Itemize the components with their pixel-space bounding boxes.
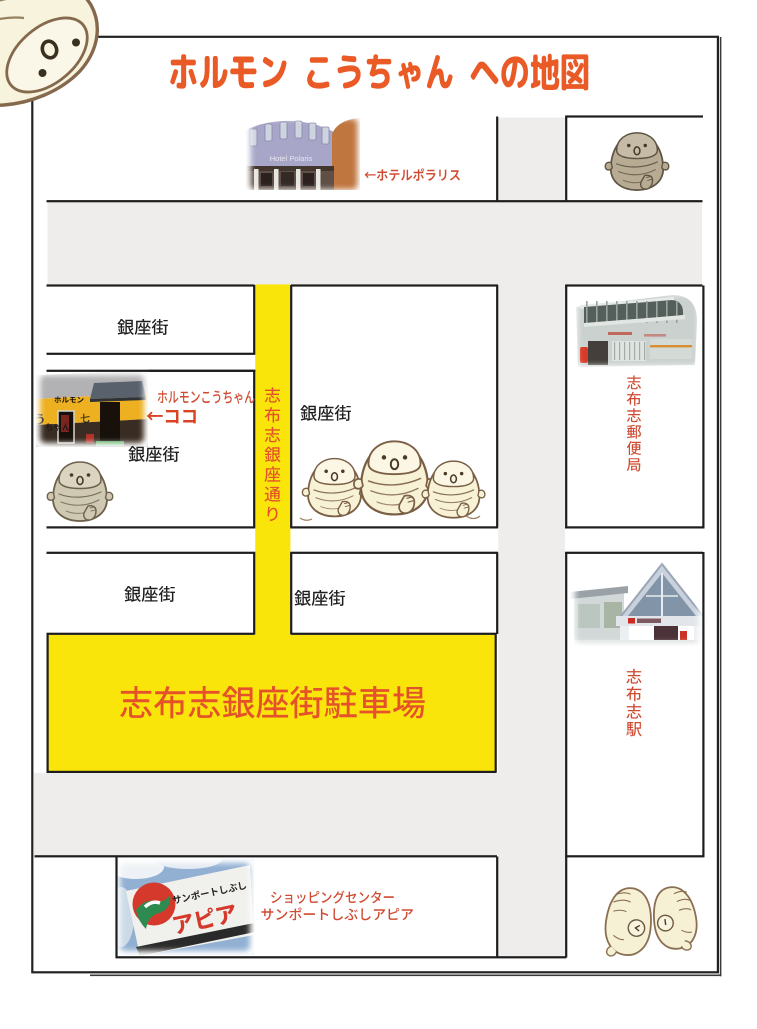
svg-text:Hotel Polaris: Hotel Polaris xyxy=(270,154,313,163)
